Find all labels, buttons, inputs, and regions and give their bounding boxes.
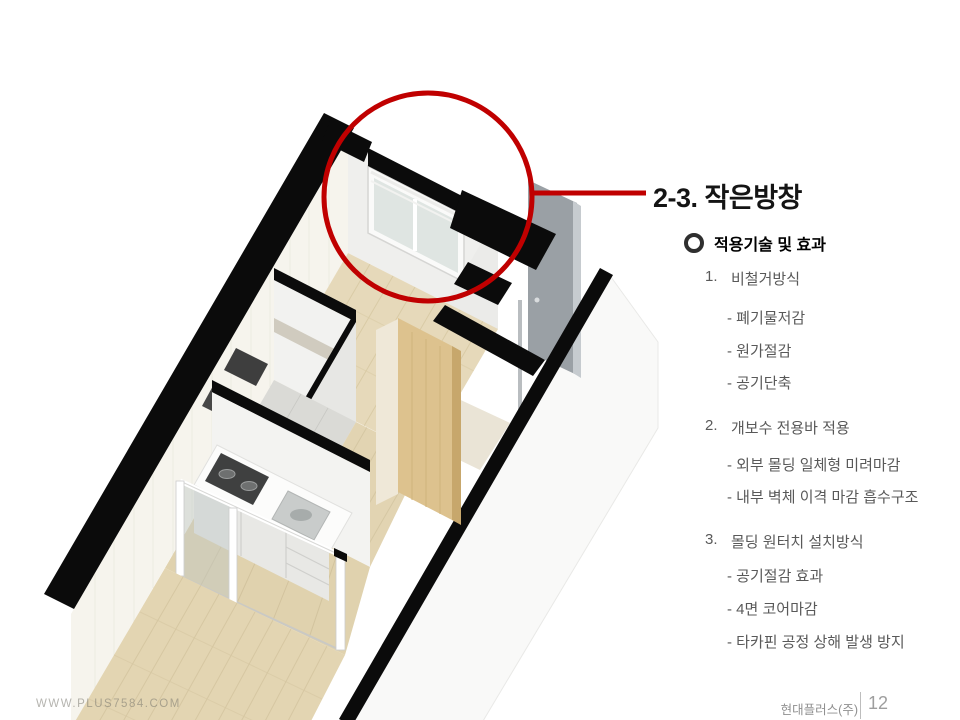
section-header: 적용기술 및 효과	[684, 231, 826, 255]
list-sub-item: - 공기단축	[727, 372, 791, 393]
list-group-heading: 2. 개보수 전용바 적용	[705, 417, 850, 438]
watermark: WWW.PLUS7584.COM	[36, 698, 181, 710]
burner	[219, 470, 235, 479]
list-group-heading: 3. 몰딩 원터치 설치방식	[705, 531, 864, 552]
list-sub-item: - 타카핀 공정 상해 발생 방지	[727, 631, 905, 652]
burner	[241, 482, 257, 491]
callout-title: 2-3. 작은방창	[653, 176, 802, 215]
list-sub-item: - 4면 코어마감	[727, 598, 818, 619]
footer-divider	[860, 692, 861, 719]
list-sub-item: - 공기절감 효과	[727, 565, 823, 586]
presentation-slide: WWW.PLUS7584.COM 2-3. 작은방창 적용기술 및 효과 1. …	[0, 0, 960, 720]
list-number: 3.	[705, 531, 731, 552]
door-handle	[535, 298, 540, 303]
footer-company: 현대플러스(주)	[781, 699, 858, 718]
list-number: 2.	[705, 417, 731, 438]
page-number: 12	[868, 693, 888, 714]
list-sub-item: - 원가절감	[727, 340, 791, 361]
list-sub-item: - 폐기물저감	[727, 307, 805, 328]
list-sub-item: - 내부 벽체 이격 마감 흡수구조	[727, 486, 918, 507]
list-number: 1.	[705, 268, 731, 289]
list-heading-text: 개보수 전용바 적용	[731, 417, 850, 438]
list-heading-text: 비철거방식	[731, 268, 800, 289]
list-heading-text: 몰딩 원터치 설치방식	[731, 531, 864, 552]
list-group-heading: 1. 비철거방식	[705, 268, 800, 289]
bullseye-icon	[684, 233, 704, 253]
wood-door-panel	[376, 318, 461, 525]
section-header-label: 적용기술 및 효과	[714, 231, 826, 255]
list-sub-item: - 외부 몰딩 일체형 미려마감	[727, 454, 900, 475]
